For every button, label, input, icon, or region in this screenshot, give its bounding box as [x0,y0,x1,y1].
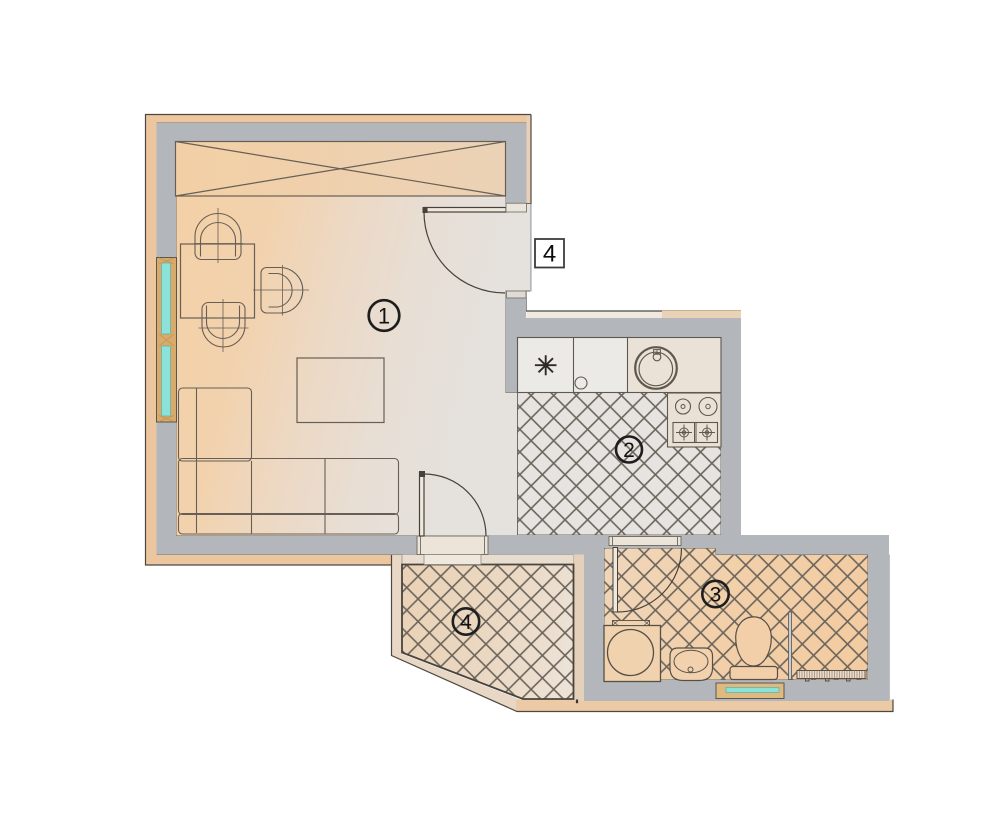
svg-text:3: 3 [710,584,722,607]
svg-text:2: 2 [623,439,635,462]
svg-text:4: 4 [460,611,472,634]
svg-text:4: 4 [543,241,556,268]
svg-text:1: 1 [378,304,390,329]
